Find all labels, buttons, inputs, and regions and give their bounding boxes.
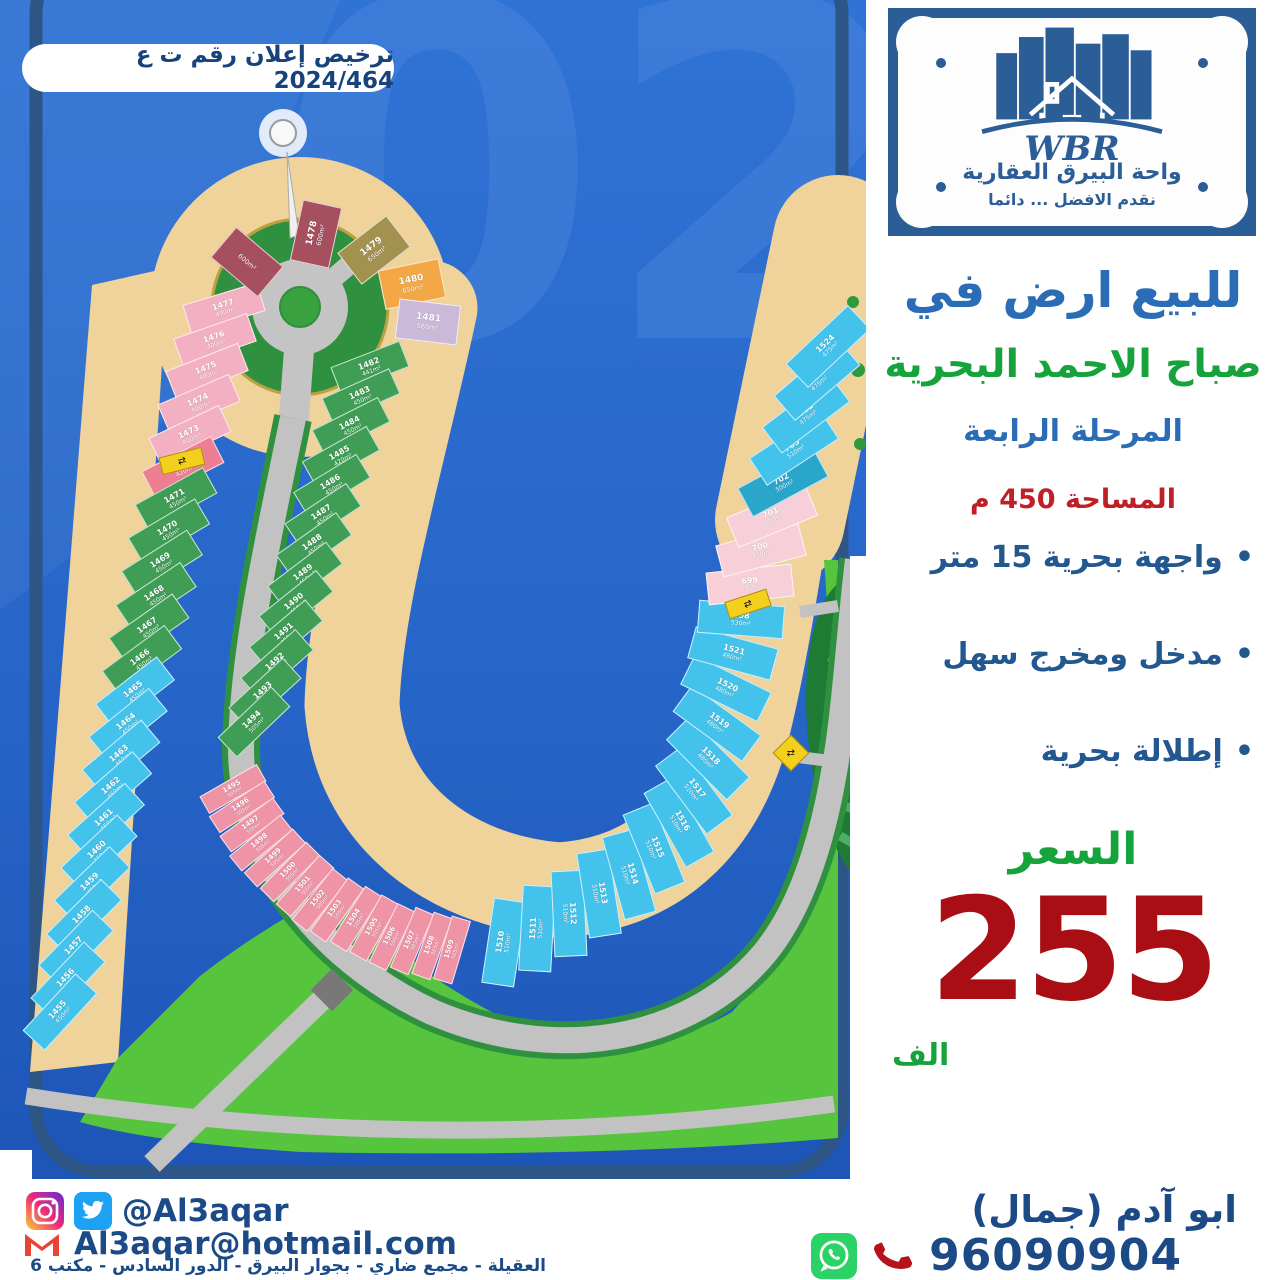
roundabout-center — [280, 287, 320, 327]
listing-location: صباح الاحمد البحرية — [866, 342, 1280, 387]
feature-list: •واجهة بحرية 15 متر •مدخل ومخرج سهل •إطل… — [931, 540, 1254, 831]
feature-item: •واجهة بحرية 15 متر — [931, 540, 1254, 575]
frame-corner-icon — [888, 8, 922, 42]
phone-number[interactable]: 96090904 — [929, 1230, 1182, 1280]
company-logo-card: WBR واحة البيرق العقارية نقدم الافضل ...… — [888, 8, 1256, 236]
logo-brand-text: WBR — [1024, 129, 1119, 162]
frame-dot — [1198, 58, 1208, 68]
whatsapp-icon[interactable] — [811, 1233, 857, 1279]
site-plan-map: 02 — [0, 0, 866, 1190]
office-address: العقيلة - مجمع ضاري - بجوار البيرق - الد… — [26, 1256, 546, 1276]
feature-item: •إطلالة بحرية — [931, 734, 1254, 769]
company-tagline: نقدم الافضل ... دائما — [898, 190, 1246, 209]
listing-area: المساحة 450 م — [866, 484, 1280, 515]
info-panel: WBR واحة البيرق العقارية نقدم الافضل ...… — [866, 0, 1280, 1190]
twitter-icon[interactable] — [74, 1192, 112, 1230]
listing-phase: المرحلة الرابعة — [866, 414, 1280, 449]
price-unit: الف — [892, 1038, 949, 1073]
frame-dot — [936, 58, 946, 68]
contact-footer: @Al3aqar Al3aqar@hotmail.com العقيلة - م… — [0, 1190, 1280, 1280]
bullet-icon: • — [1235, 540, 1254, 575]
instagram-icon[interactable] — [26, 1192, 64, 1230]
feature-item: •مدخل ومخرج سهل — [931, 637, 1254, 672]
price-value: 255 — [866, 868, 1280, 1033]
company-name: واحة البيرق العقارية — [898, 160, 1246, 185]
bullet-icon: • — [1235, 734, 1254, 769]
agent-name: ابو آدم (جمال) — [971, 1188, 1237, 1231]
map-base-art: 02 — [0, 0, 866, 1190]
bullet-icon: • — [1235, 637, 1254, 672]
social-handle[interactable]: @Al3aqar — [122, 1193, 289, 1229]
flyer-page: 02 — [0, 0, 1280, 1280]
listing-title: للبيع ارض في — [866, 262, 1280, 319]
skyline-house-logo-icon: WBR — [962, 20, 1182, 162]
phone-row: 96090904 — [811, 1230, 1182, 1280]
license-badge: ترخيص إعلان رقم ت ع 2024/464 — [22, 44, 394, 92]
frame-corner-icon — [1222, 8, 1256, 42]
phone-icon[interactable] — [873, 1236, 913, 1276]
